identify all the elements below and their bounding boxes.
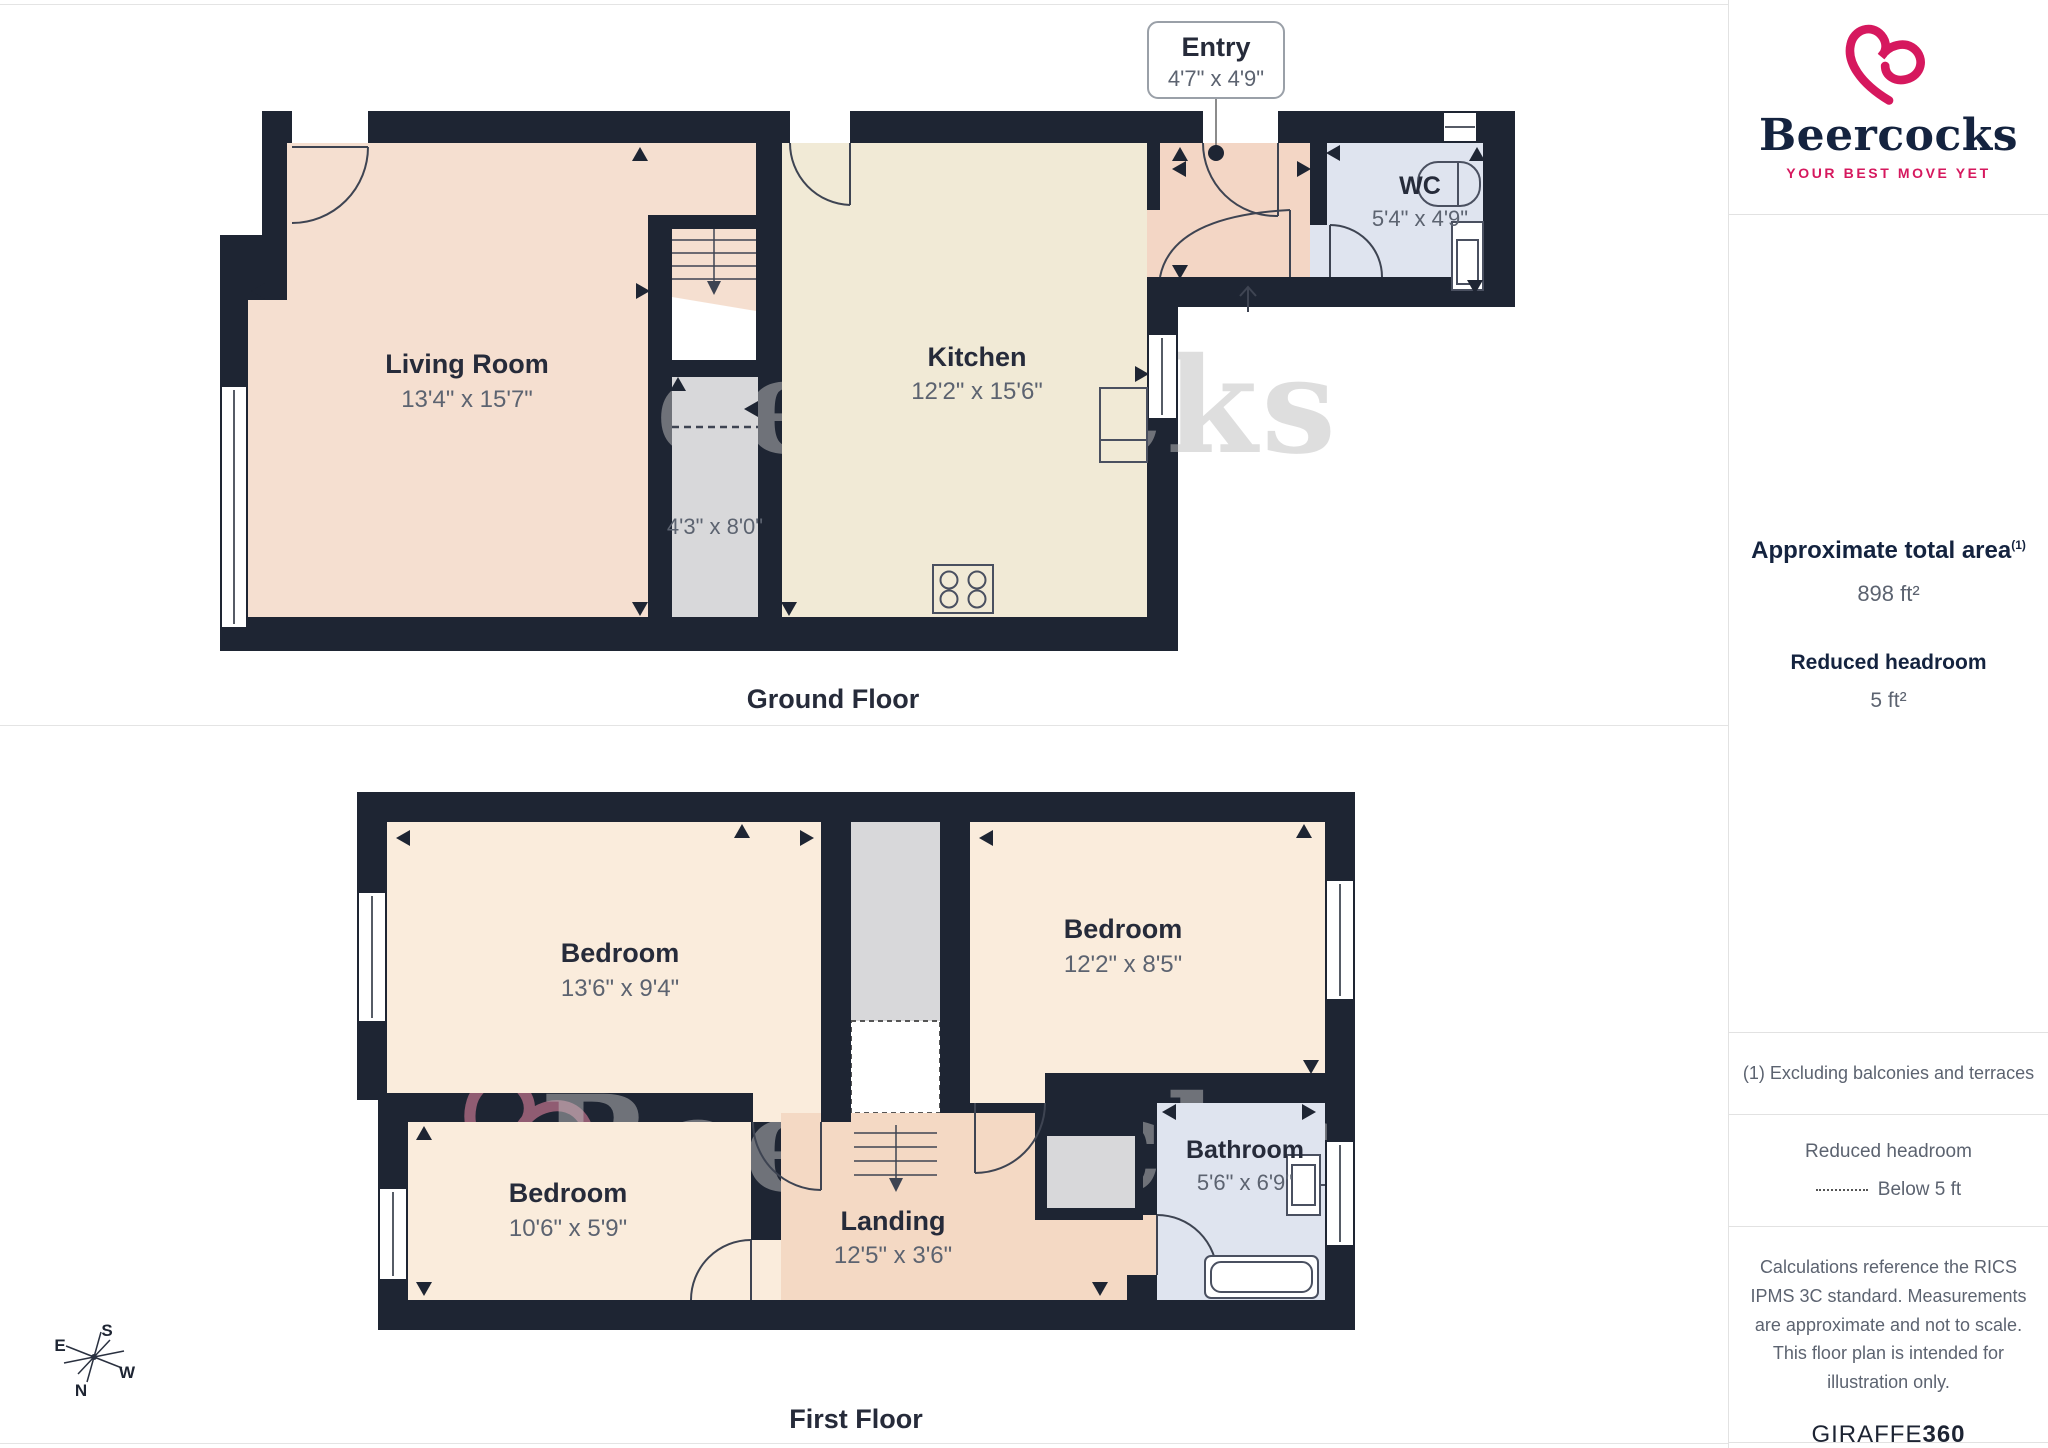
kitchen-dims: 12'2" x 15'6" — [911, 378, 1043, 405]
front-door-opening — [1203, 111, 1278, 143]
living-room-dims: 13'4" x 15'7" — [401, 386, 533, 413]
giraffe-360: 360 — [1922, 1421, 1965, 1448]
compass-s: S — [101, 1321, 112, 1340]
bedroom3-dims: 10'6" x 5'9" — [509, 1215, 627, 1242]
first-floor-plan: Beercocks — [357, 792, 1355, 1434]
entry-dims: 4'7" x 4'9" — [1168, 66, 1264, 91]
storage-area — [672, 377, 758, 617]
bedroom-1 — [387, 822, 821, 1122]
wc-label: WC — [1399, 172, 1441, 200]
bedroom1-dims: 13'6" x 9'4" — [561, 975, 679, 1002]
kitchen-label: Kitchen — [927, 342, 1026, 372]
headroom-title: Reduced headroom — [1729, 651, 2048, 675]
ground-floor-title: Ground Floor — [747, 684, 920, 714]
bedroom2-label: Bedroom — [1064, 914, 1183, 944]
bedroom1-label: Bedroom — [561, 938, 680, 968]
area-title: Approximate total area(1) — [1729, 537, 2048, 565]
landing-label: Landing — [841, 1206, 946, 1236]
bedroom2-dims: 12'2" x 8'5" — [1064, 951, 1182, 978]
headroom-legend: Reduced headroom Below 5 ft — [1729, 1115, 2048, 1227]
brand-name: Beercocks — [1759, 114, 2018, 158]
storage-dims: 4'3" x 8'0" — [667, 514, 763, 539]
bathroom-dims: 5'6" x 6'9" — [1197, 1170, 1293, 1195]
headroom-value: 5 ft² — [1729, 689, 2048, 713]
brand-tagline: YOUR BEST MOVE YET — [1786, 165, 1990, 181]
wc-toilet-icon — [1452, 222, 1483, 290]
legend-title: Reduced headroom — [1805, 1141, 1972, 1163]
dotted-line-sample — [1816, 1189, 1868, 1191]
floorplan-page: Beercocks — [0, 0, 2048, 1448]
bathtub-icon — [1205, 1256, 1318, 1298]
footnote: (1) Excluding balconies and terraces — [1729, 1033, 2048, 1115]
bathroom-label: Bathroom — [1186, 1136, 1304, 1164]
stairwell — [851, 822, 940, 1113]
legend-value: Below 5 ft — [1878, 1179, 1961, 1201]
area-value: 898 ft² — [1729, 581, 2048, 607]
area-footnote-marker: (1) — [2011, 538, 2026, 552]
landing-dims: 12'5" x 3'6" — [834, 1242, 952, 1269]
area-summary: Approximate total area(1) 898 ft² Reduce… — [1729, 215, 2048, 1033]
disclaimer-text: Calculations reference the RICS IPMS 3C … — [1749, 1253, 2028, 1397]
compass-e: E — [54, 1336, 65, 1355]
giraffe-text: GIRAFFE — [1811, 1421, 1922, 1448]
living-room-label: Living Room — [385, 349, 549, 379]
info-sidebar: Beercocks YOUR BEST MOVE YET Approximate… — [1728, 0, 2048, 1448]
first-floor-title: First Floor — [789, 1404, 923, 1434]
beercocks-heart-icon — [1834, 16, 1944, 112]
footnote-text: (1) Excluding balconies and terraces — [1743, 1063, 2034, 1084]
living-door-opening — [292, 111, 368, 143]
disclaimer-block: Calculations reference the RICS IPMS 3C … — [1729, 1227, 2048, 1443]
giraffe360-logo: GIRAFFE360 — [1749, 1421, 2028, 1448]
bedroom-3 — [408, 1122, 781, 1300]
wc-dims: 5'4" x 4'9" — [1372, 206, 1468, 231]
compass-w: W — [119, 1363, 136, 1382]
ground-floor-plan: Beercocks — [220, 22, 1515, 714]
kitchen-door-opening — [790, 111, 850, 143]
bedroom3-label: Bedroom — [509, 1178, 628, 1208]
brand-block: Beercocks YOUR BEST MOVE YET — [1729, 0, 2048, 215]
compass-icon: S E W N — [54, 1321, 136, 1400]
staircase — [672, 229, 756, 360]
compass-n: N — [75, 1381, 87, 1400]
entry-label: Entry — [1181, 32, 1250, 62]
